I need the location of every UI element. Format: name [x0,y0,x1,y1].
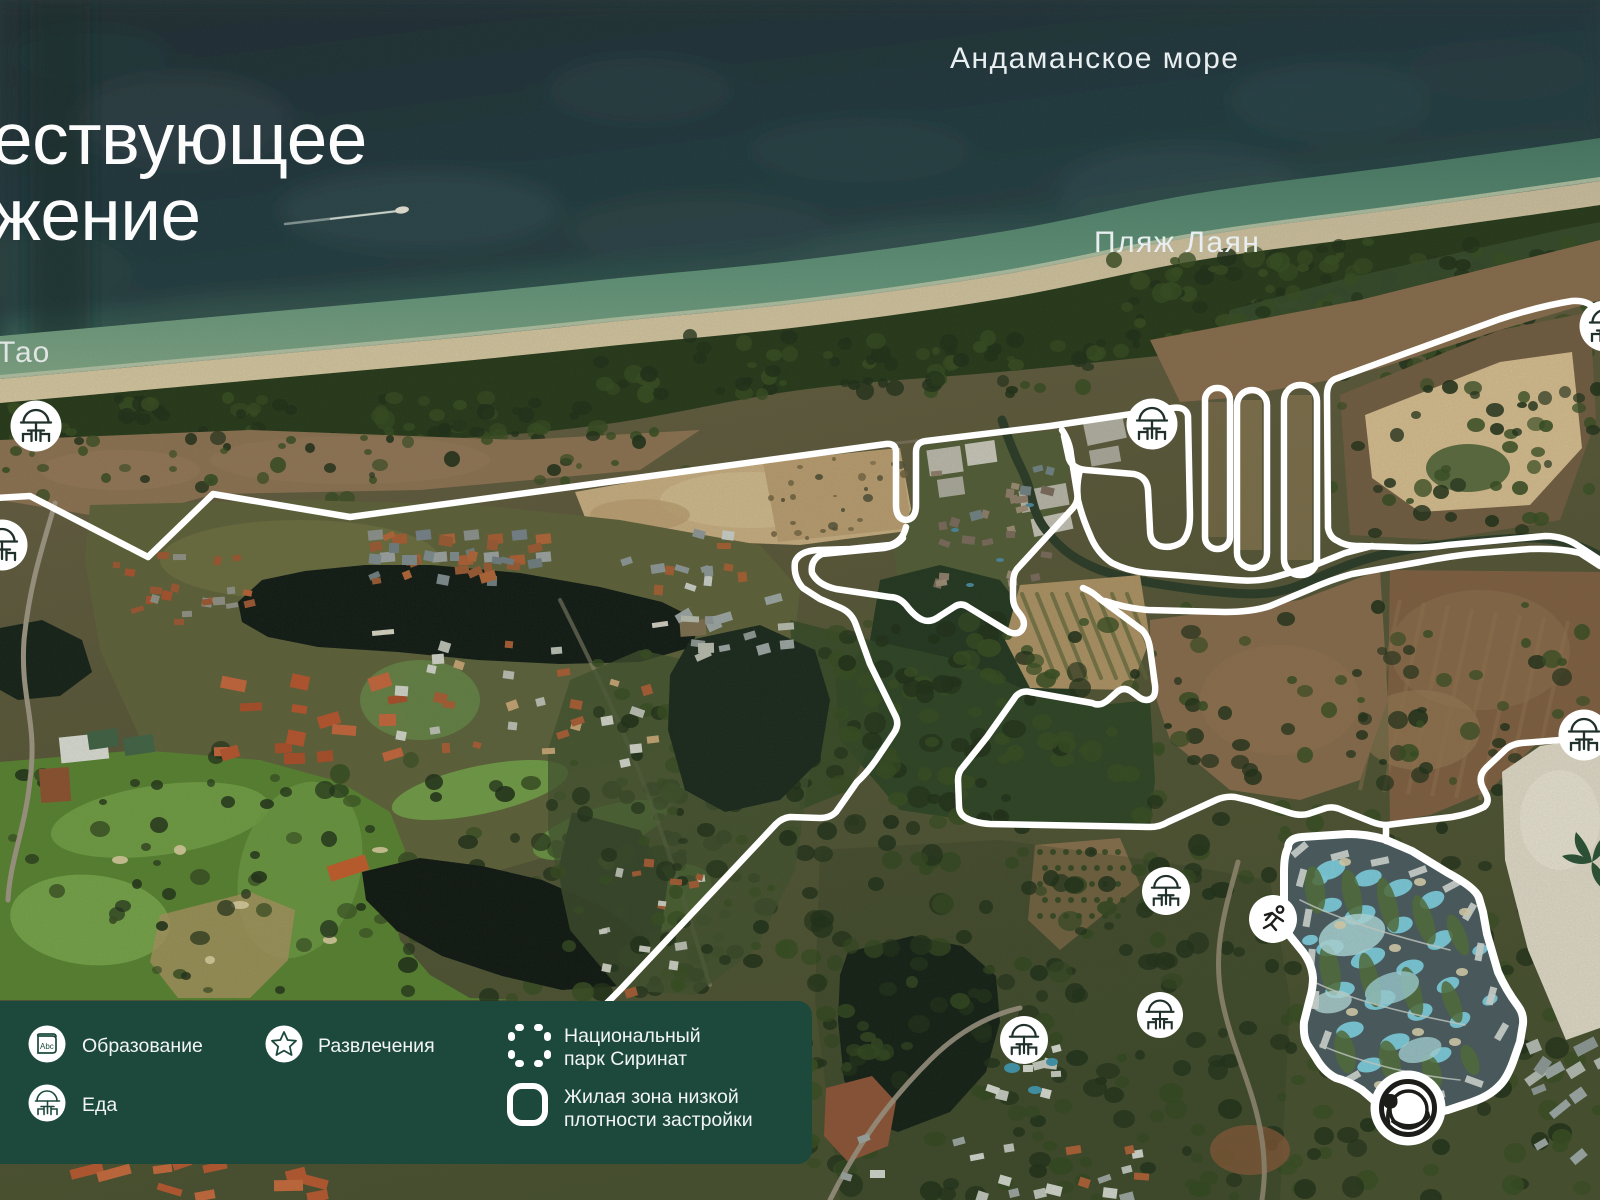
svg-text:Abc: Abc [40,1042,54,1051]
svg-text:ествующее: ествующее [0,99,367,180]
svg-text:Жилая зона низкой: Жилая зона низкой [564,1086,739,1108]
svg-text:Андаманское море: Андаманское море [950,42,1240,75]
svg-text:Образование: Образование [82,1035,203,1057]
svg-text:Пляж Лаян: Пляж Лаян [1094,226,1260,259]
svg-text:парк Сиринат: парк Сиринат [564,1048,687,1070]
svg-text:Развлечения: Развлечения [318,1035,435,1057]
svg-text:Еда: Еда [82,1094,117,1116]
svg-text:плотности застройки: плотности застройки [564,1109,753,1131]
svg-text:Тао: Тао [0,336,50,369]
svg-text:Национальный: Национальный [564,1025,701,1047]
svg-text:жение: жение [0,175,201,256]
